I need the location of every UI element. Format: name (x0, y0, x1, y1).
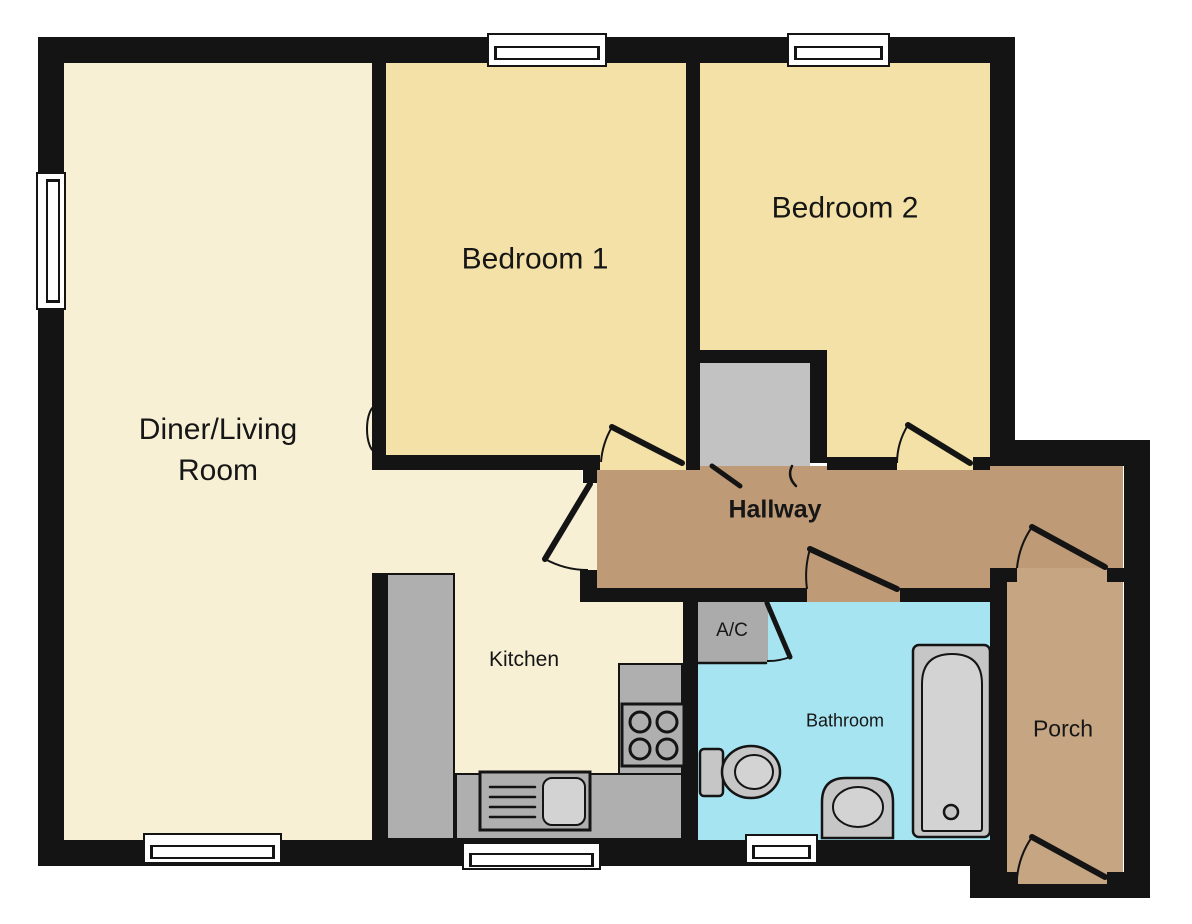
bathtub (913, 645, 990, 837)
door-ac-cupboard (767, 603, 790, 661)
closet-door-marks (712, 466, 796, 486)
label-bedroom1: Bedroom 1 (462, 239, 609, 280)
label-diner-living-room: Diner/Living Room (139, 409, 297, 491)
label-line: Diner/Living (139, 409, 297, 450)
door-bedroom2 (897, 425, 970, 463)
label-line: Room (139, 450, 297, 491)
kitchen-sink (480, 772, 590, 830)
label-kitchen: Kitchen (489, 648, 559, 672)
door-porch-inner (1017, 527, 1105, 568)
stove-hob (622, 704, 684, 766)
door-bedroom1 (601, 427, 682, 463)
door-living-room (545, 484, 590, 570)
label-ac: A/C (716, 620, 748, 642)
floor-plan: Diner/Living Room Bedroom 1 Bedroom 2 Ha… (0, 0, 1192, 924)
label-bathroom: Bathroom (806, 711, 884, 732)
pedestal-basin (822, 778, 893, 838)
door-porch-exit (1017, 837, 1105, 878)
label-hallway: Hallway (728, 496, 821, 525)
toilet (700, 746, 780, 798)
label-bedroom2: Bedroom 2 (772, 188, 919, 229)
label-porch: Porch (1033, 716, 1093, 743)
door-bathroom (806, 549, 897, 589)
wall-opening-symbol (367, 406, 385, 452)
